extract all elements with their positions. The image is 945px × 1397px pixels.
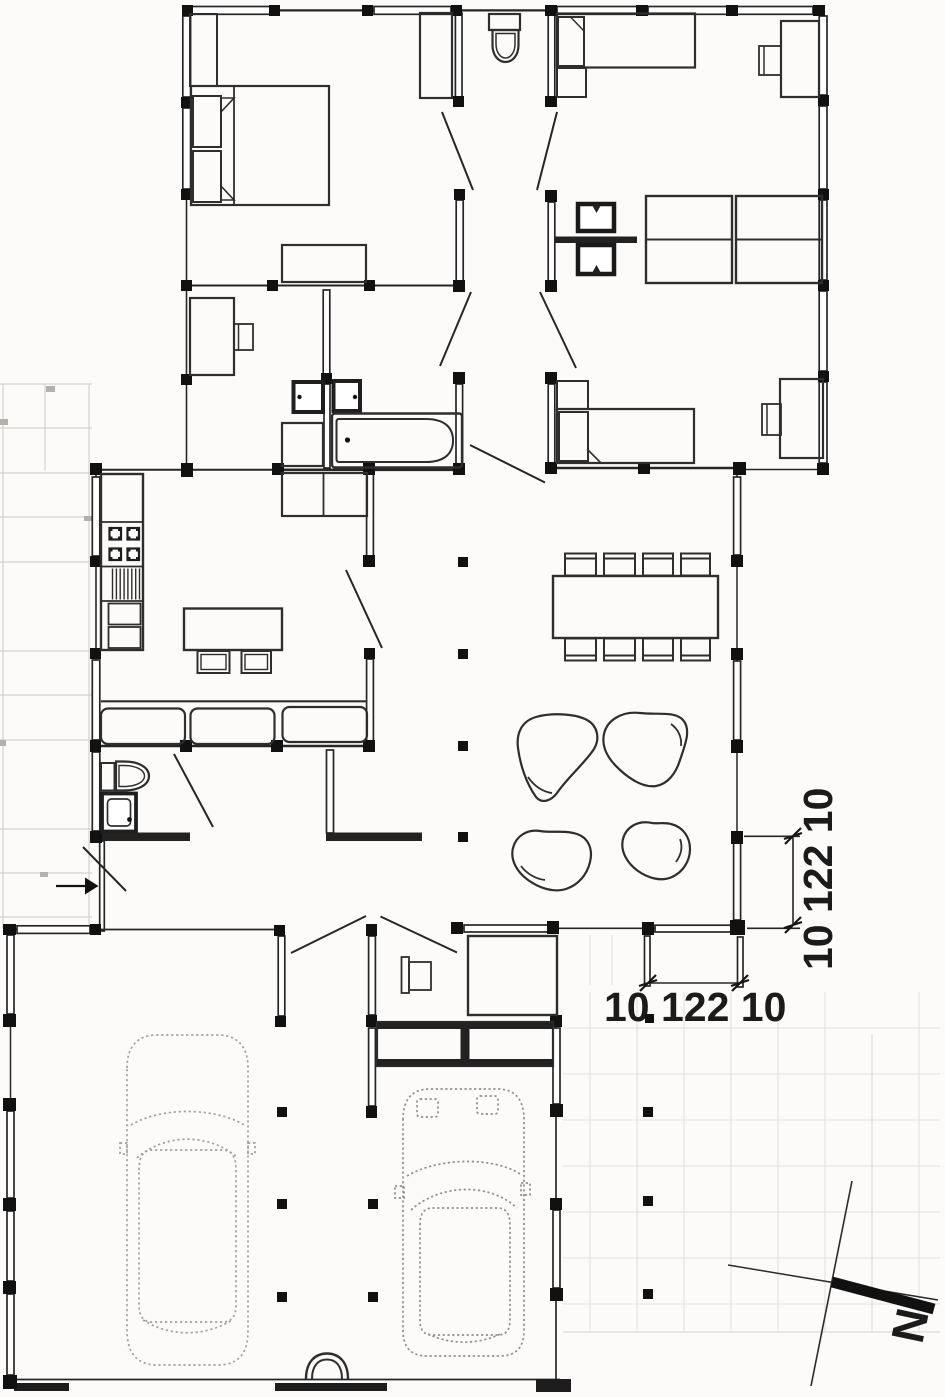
svg-text:10 122 10: 10 122 10	[604, 984, 786, 1030]
svg-text:10 122 10: 10 122 10	[795, 788, 841, 970]
